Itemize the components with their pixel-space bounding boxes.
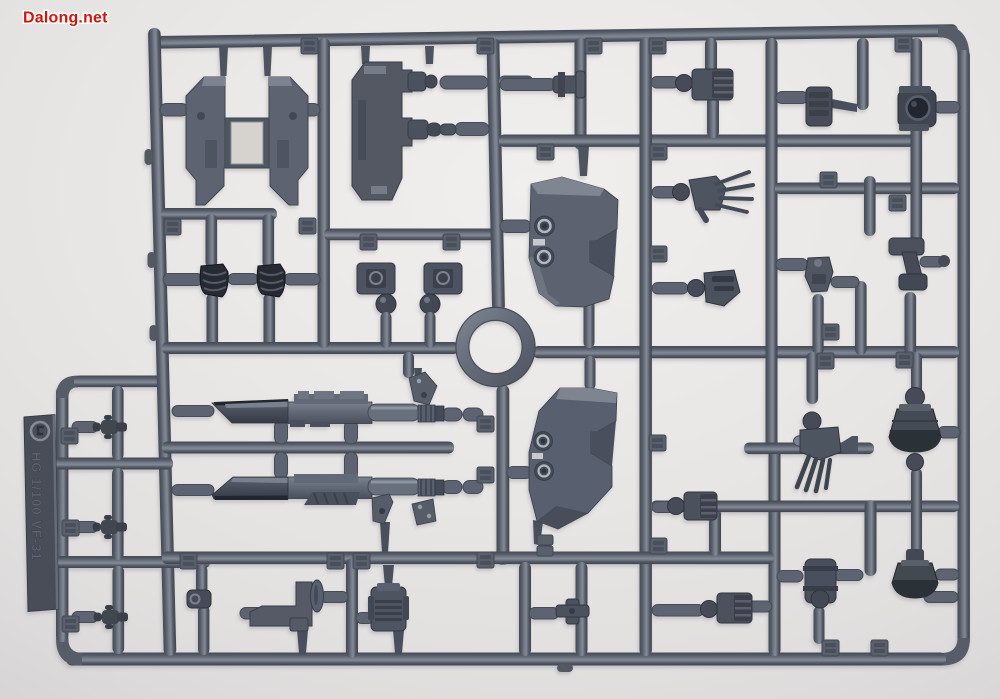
svg-text:HG 1/100 VF-31: HG 1/100 VF-31 [29,452,44,561]
svg-text:Dalong.net: Dalong.net [23,10,108,27]
